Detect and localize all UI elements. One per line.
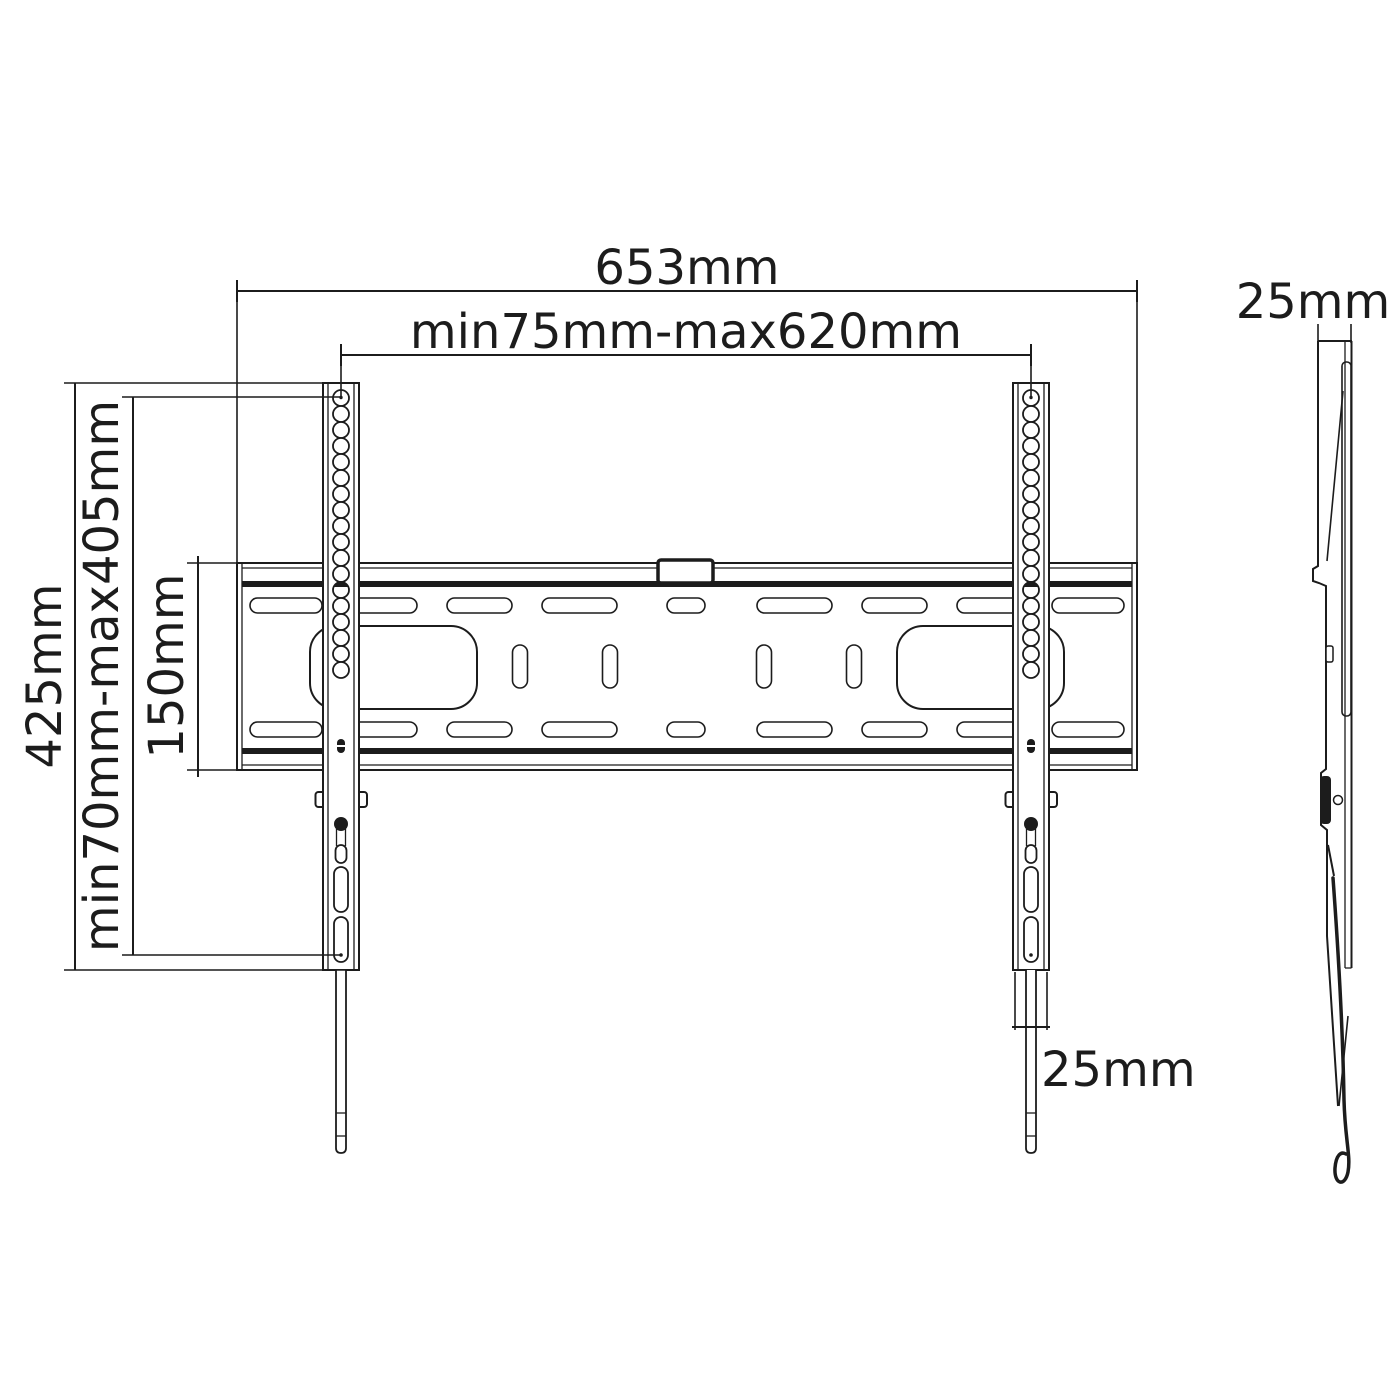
mounting-slot [542,598,617,613]
vertical-slot [757,645,772,688]
bolt-hole [1023,550,1039,566]
tv-rail-left [316,383,368,1153]
bolt-hole [333,438,349,454]
side-lock-hole [1334,796,1343,805]
mount-diagram-svg: 653mm min75mm-max620mm 425mm min70mm-max… [0,0,1400,1400]
bolt-hole [1023,566,1039,582]
bolt-hole [333,630,349,646]
plate-height-label: 150mm [139,573,195,758]
height-range-label: min70mm-max405mm [74,400,130,952]
mounting-slot [542,722,617,737]
plate-center-tab [658,560,713,583]
bolt-hole [1023,598,1039,614]
drawing-canvas: 653mm min75mm-max620mm 425mm min70mm-max… [0,0,1400,1400]
dim-point [1029,396,1032,399]
bolt-hole [1023,502,1039,518]
overall-width-label: 653mm [594,240,779,296]
vertical-slot [513,645,528,688]
width-range-label: min75mm-max620mm [410,304,962,360]
bolt-hole [333,550,349,566]
bolt-hole [333,502,349,518]
bolt-hole [333,598,349,614]
mounting-slot [352,598,417,613]
screw-seat [1026,845,1037,863]
bolt-hole [333,454,349,470]
mounting-slot [757,722,832,737]
overall-height-label: 425mm [17,583,73,768]
mounting-slot [667,598,705,613]
bolt-hole [1023,470,1039,486]
bolt-hole [1023,646,1039,662]
rail-slot [334,867,348,912]
rail-slot [1024,867,1038,912]
mounting-slot [447,722,512,737]
bolt-hole [333,470,349,486]
bolt-hole [1023,662,1039,678]
dim-point [1029,953,1033,957]
bolt-hole [333,662,349,678]
bolt-hole [1023,534,1039,550]
adjust-screw [334,817,348,831]
bolt-hole [1023,614,1039,630]
bolt-hole [333,422,349,438]
side-bend-line [1327,391,1343,561]
vertical-slot [603,645,618,688]
mounting-slot [352,722,417,737]
mounting-slot [447,598,512,613]
mounting-slot [250,722,322,737]
mounting-slot [250,598,322,613]
bolt-hole [1023,518,1039,534]
bolt-hole [333,534,349,550]
side-profile-view [1313,341,1352,1182]
mounting-slot [757,598,832,613]
bolt-hole [1023,422,1039,438]
bolt-hole [1023,630,1039,646]
mounting-slot [862,598,927,613]
pull-strap [336,970,346,1153]
bolt-hole [333,406,349,422]
bolt-hole [1023,486,1039,502]
bolt-hole [333,566,349,582]
depth-label: 25mm [1236,274,1391,330]
screw-seat [336,845,347,863]
side-hook-block [1320,776,1331,824]
side-back-strip [1342,362,1351,716]
bolt-hole [1023,454,1039,470]
wall-plate-front [237,560,1137,770]
bolt-hole [1023,406,1039,422]
bolt-hole [333,486,349,502]
plate-bottom-fold-band [242,748,1132,754]
pull-strap [1026,970,1036,1153]
side-clip [1326,646,1333,662]
mounting-slot [667,722,705,737]
bolt-hole [333,614,349,630]
tv-rail-right [1006,383,1058,1153]
adjust-screw [1024,817,1038,831]
bolt-hole [333,646,349,662]
vertical-slot [847,645,862,688]
mounting-slot [862,722,927,737]
side-cord-anchor [1328,845,1334,876]
bolt-hole [333,518,349,534]
bolt-hole [1023,438,1039,454]
rail-width-label: 25mm [1041,1042,1196,1098]
mounting-slot [1052,598,1124,613]
mounting-slot [1052,722,1124,737]
side-front-contour [1313,341,1338,1106]
